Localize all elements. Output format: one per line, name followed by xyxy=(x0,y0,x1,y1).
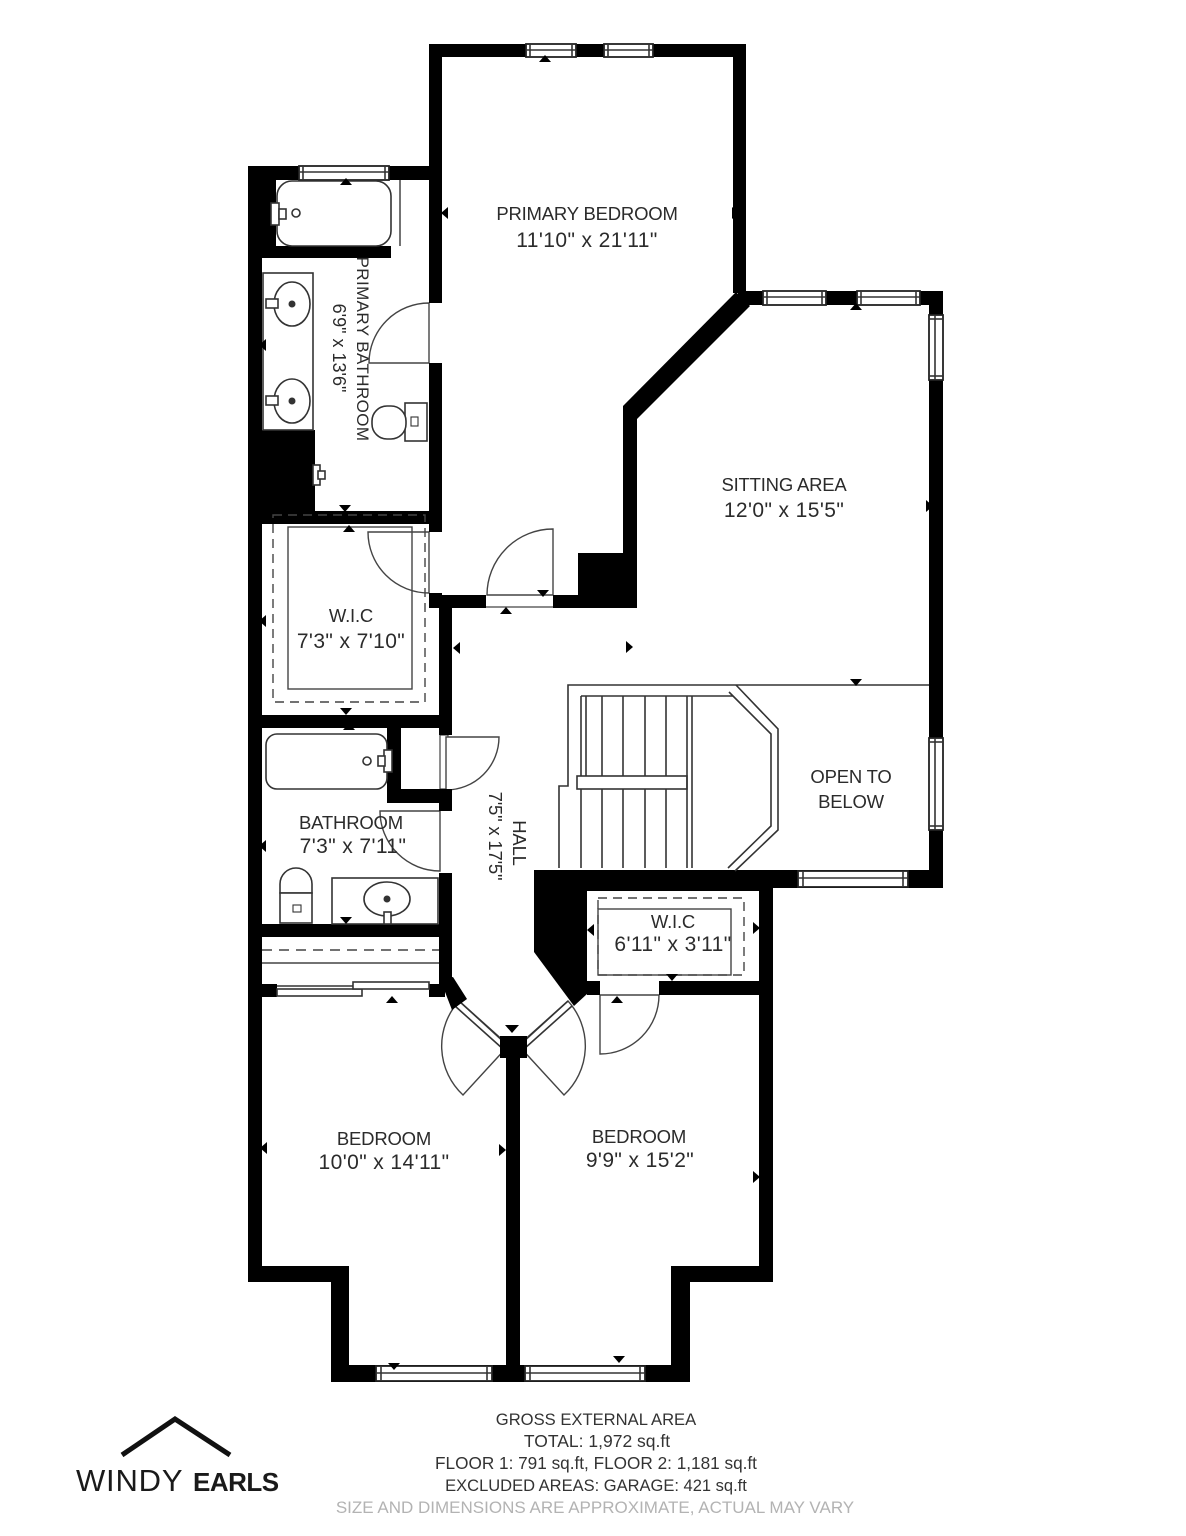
svg-text:PRIMARY BATHROOM: PRIMARY BATHROOM xyxy=(353,257,372,442)
svg-text:TOTAL: 1,972 sq.ft: TOTAL: 1,972 sq.ft xyxy=(524,1431,670,1451)
svg-text:HALL: HALL xyxy=(509,820,530,865)
svg-text:9'9" x 15'2": 9'9" x 15'2" xyxy=(586,1149,694,1172)
svg-text:WINDY: WINDY xyxy=(76,1463,183,1498)
svg-text:7'3" x 7'11": 7'3" x 7'11" xyxy=(300,835,407,858)
svg-text:FLOOR 1: 791 sq.ft, FLOOR 2: 1: FLOOR 1: 791 sq.ft, FLOOR 2: 1,181 sq.ft xyxy=(435,1453,757,1473)
svg-text:7'5" x 17'5": 7'5" x 17'5" xyxy=(485,792,506,881)
svg-text:11'10" x 21'11": 11'10" x 21'11" xyxy=(516,229,657,252)
svg-text:6'11" x 3'11": 6'11" x 3'11" xyxy=(614,933,731,956)
svg-text:SITTING AREA: SITTING AREA xyxy=(721,474,847,495)
svg-text:10'0" x 14'11": 10'0" x 14'11" xyxy=(319,1151,450,1174)
svg-text:BEDROOM: BEDROOM xyxy=(592,1126,686,1147)
svg-text:EXCLUDED AREAS: GARAGE: 421 sq: EXCLUDED AREAS: GARAGE: 421 sq.ft xyxy=(445,1477,747,1495)
svg-text:7'3" x 7'10": 7'3" x 7'10" xyxy=(297,630,405,653)
svg-text:PRIMARY BEDROOM: PRIMARY BEDROOM xyxy=(496,203,677,224)
svg-text:W.I.C: W.I.C xyxy=(651,911,695,932)
svg-text:W.I.C: W.I.C xyxy=(329,605,373,626)
svg-text:6'9" x 13'6": 6'9" x 13'6" xyxy=(329,304,349,393)
svg-text:BEDROOM: BEDROOM xyxy=(337,1128,431,1149)
svg-text:BATHROOM: BATHROOM xyxy=(299,812,403,833)
svg-text:12'0" x 15'5": 12'0" x 15'5" xyxy=(724,499,844,522)
svg-text:BELOW: BELOW xyxy=(818,791,885,812)
svg-text:SIZE AND DIMENSIONS ARE APPROX: SIZE AND DIMENSIONS ARE APPROXIMATE, ACT… xyxy=(336,1498,854,1517)
svg-text:GROSS EXTERNAL AREA: GROSS EXTERNAL AREA xyxy=(496,1410,697,1429)
svg-text:OPEN TO: OPEN TO xyxy=(810,766,891,787)
svg-text:EARLS: EARLS xyxy=(193,1467,279,1497)
